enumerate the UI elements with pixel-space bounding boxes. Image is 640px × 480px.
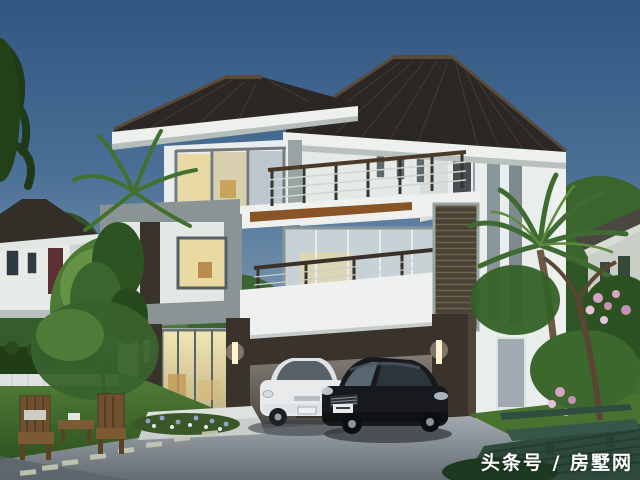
rendering-canvas: 头条号 / 房墅网 [0, 0, 640, 480]
headlight [321, 387, 333, 395]
license-plate [298, 407, 316, 414]
window-pane [250, 151, 284, 209]
villa-rendering [0, 0, 640, 480]
flower-bed [132, 413, 240, 435]
headlight [263, 391, 273, 398]
interior-furniture [198, 262, 212, 278]
left-house-window [27, 252, 37, 274]
headlight [434, 392, 448, 400]
watermark: 头条号 / 房墅网 [481, 448, 633, 475]
bench-leg [606, 433, 614, 447]
interior-furniture [198, 380, 220, 400]
left-house-window [6, 250, 19, 276]
interior-furniture [220, 180, 236, 198]
grille [294, 396, 320, 401]
tower-ground-window [497, 338, 525, 408]
